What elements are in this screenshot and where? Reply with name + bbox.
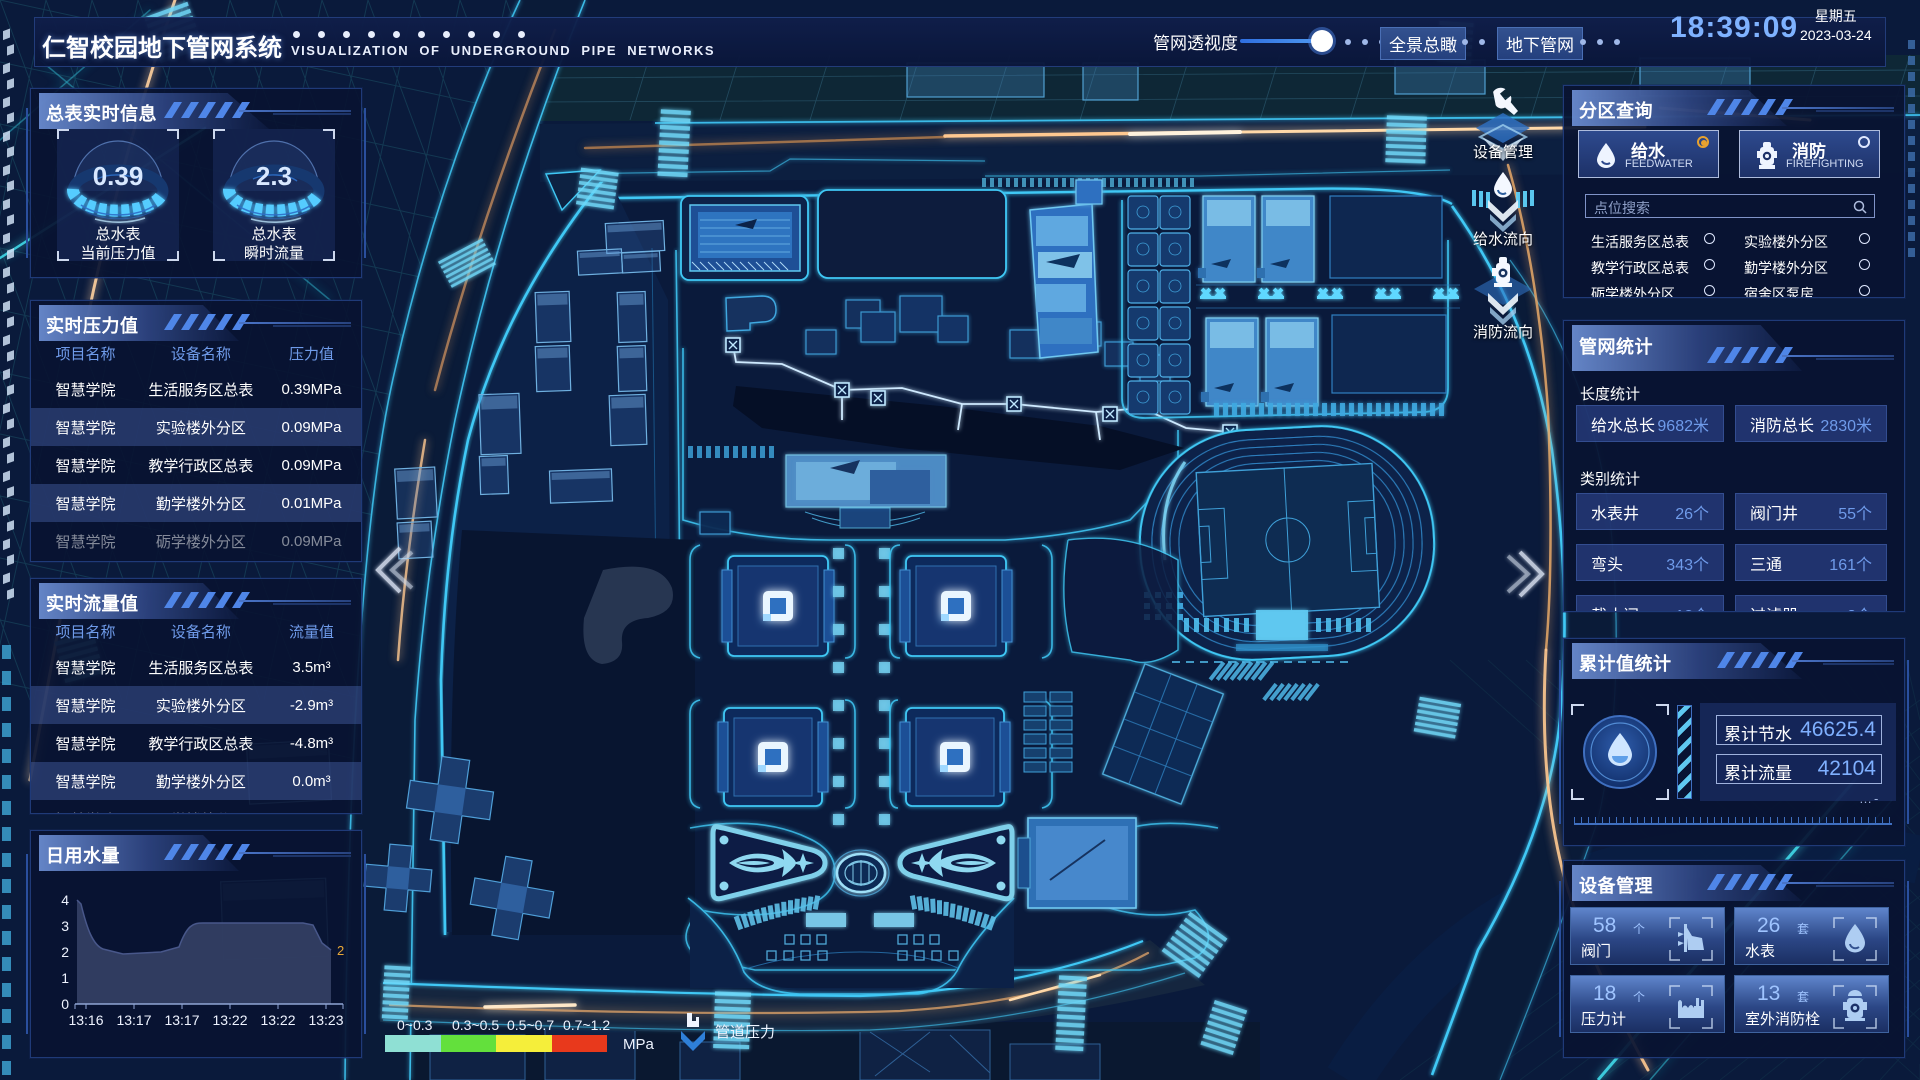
svg-text:3: 3 bbox=[61, 918, 69, 934]
svg-text:2: 2 bbox=[337, 943, 344, 958]
svg-text:13:16: 13:16 bbox=[68, 1012, 103, 1028]
svg-text:13:23: 13:23 bbox=[308, 1012, 343, 1028]
svg-text:13:22: 13:22 bbox=[212, 1012, 247, 1028]
svg-text:0: 0 bbox=[61, 996, 69, 1012]
svg-text:13:17: 13:17 bbox=[116, 1012, 151, 1028]
svg-text:1: 1 bbox=[61, 970, 69, 986]
svg-text:4: 4 bbox=[61, 892, 69, 908]
svg-text:13:22: 13:22 bbox=[260, 1012, 295, 1028]
svg-text:2.3: 2.3 bbox=[256, 161, 292, 191]
svg-text:2: 2 bbox=[61, 944, 69, 960]
svg-text:13:17: 13:17 bbox=[164, 1012, 199, 1028]
svg-text:0.39: 0.39 bbox=[93, 161, 144, 191]
